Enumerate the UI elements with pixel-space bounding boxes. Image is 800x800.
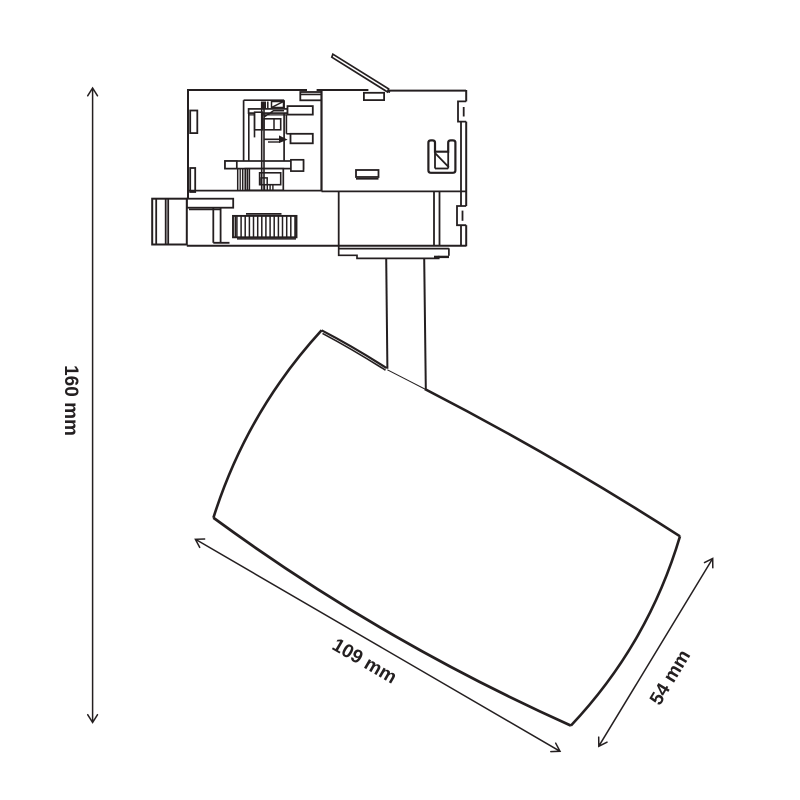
- svg-text:160 mm: 160 mm: [60, 365, 81, 436]
